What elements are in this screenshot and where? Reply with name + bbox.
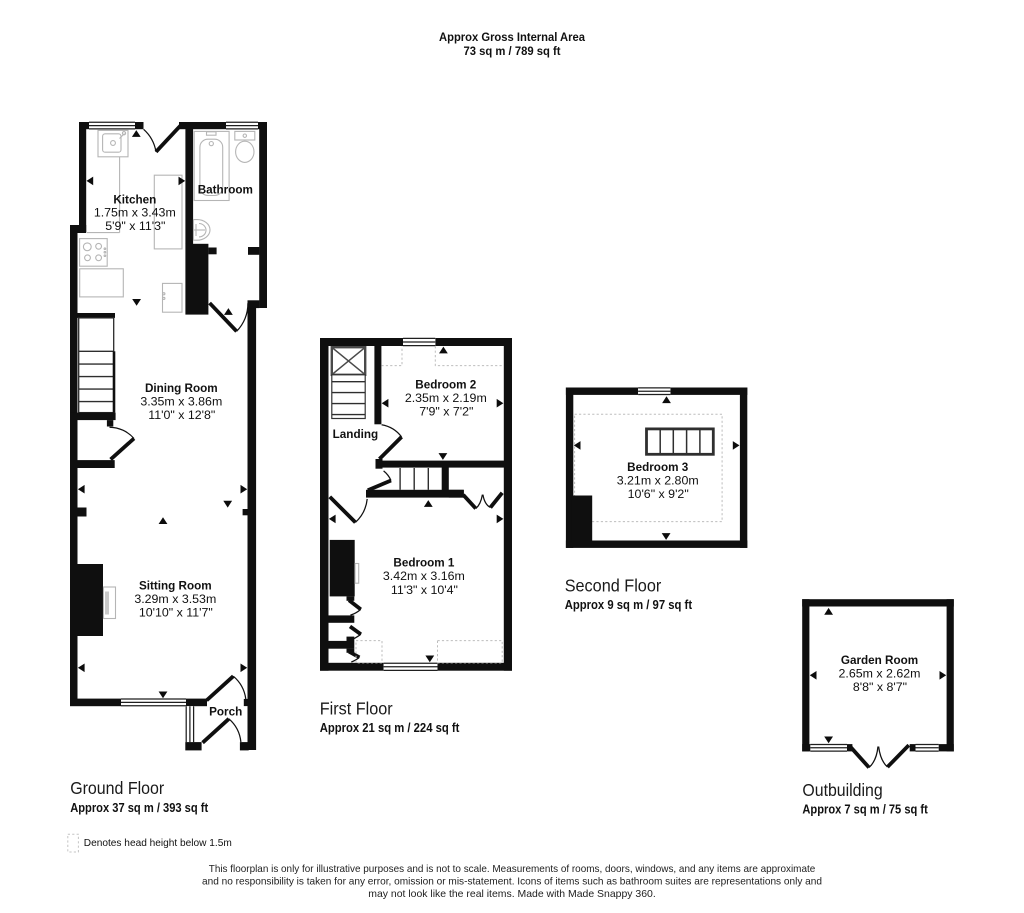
svg-text:Sitting Room: Sitting Room — [139, 580, 212, 593]
svg-text:8'8" x 8'7": 8'8" x 8'7" — [853, 680, 907, 694]
svg-text:Ground Floor: Ground Floor — [70, 778, 164, 798]
svg-text:3.29m x 3.53m: 3.29m x 3.53m — [134, 592, 216, 606]
svg-text:Approx 7 sq m / 75 sq ft: Approx 7 sq m / 75 sq ft — [802, 803, 928, 817]
svg-text:73 sq m / 789 sq ft: 73 sq m / 789 sq ft — [464, 44, 561, 58]
svg-text:Approx 21 sq m / 224 sq ft: Approx 21 sq m / 224 sq ft — [320, 721, 460, 735]
svg-text:and no responsibility is taken: and no responsibility is taken for any e… — [202, 876, 822, 887]
svg-text:3.42m x 3.16m: 3.42m x 3.16m — [383, 569, 465, 583]
svg-text:Landing: Landing — [333, 428, 378, 441]
svg-text:Second Floor: Second Floor — [565, 576, 662, 596]
svg-text:Dining Room: Dining Room — [145, 382, 218, 395]
svg-text:3.35m x 3.86m: 3.35m x 3.86m — [140, 394, 222, 408]
svg-text:7'9" x 7'2": 7'9" x 7'2" — [419, 405, 473, 419]
svg-text:This floorplan is only for ill: This floorplan is only for illustrative … — [209, 864, 816, 875]
svg-text:2.65m x 2.62m: 2.65m x 2.62m — [839, 666, 921, 680]
svg-text:Outbuilding: Outbuilding — [802, 780, 882, 800]
svg-text:may not look like the real ite: may not look like the real items. Made w… — [368, 889, 656, 900]
svg-text:1.75m x 3.43m: 1.75m x 3.43m — [94, 206, 176, 220]
svg-text:First Floor: First Floor — [320, 698, 393, 718]
svg-text:Garden Room: Garden Room — [841, 654, 918, 667]
svg-text:10'6" x 9'2": 10'6" x 9'2" — [628, 487, 689, 501]
svg-text:Approx Gross Internal Area: Approx Gross Internal Area — [439, 30, 585, 44]
svg-text:Bedroom 3: Bedroom 3 — [627, 461, 689, 474]
svg-text:Porch: Porch — [209, 705, 242, 718]
svg-text:Denotes head height below 1.5m: Denotes head height below 1.5m — [84, 838, 232, 849]
svg-text:Bathroom: Bathroom — [198, 183, 253, 196]
svg-text:11'0" x 12'8": 11'0" x 12'8" — [148, 408, 215, 422]
svg-text:Bedroom 2: Bedroom 2 — [415, 379, 477, 392]
svg-text:Kitchen: Kitchen — [113, 193, 156, 206]
svg-text:11'3" x 10'4": 11'3" x 10'4" — [391, 583, 458, 597]
svg-text:Approx 37 sq m / 393 sq ft: Approx 37 sq m / 393 sq ft — [70, 801, 209, 815]
svg-text:5'9" x 11'3": 5'9" x 11'3" — [105, 219, 165, 233]
svg-text:10'10" x 11'7": 10'10" x 11'7" — [139, 605, 213, 619]
svg-text:3.21m x 2.80m: 3.21m x 2.80m — [617, 473, 699, 487]
svg-text:Approx 9 sq m / 97 sq ft: Approx 9 sq m / 97 sq ft — [565, 598, 693, 612]
svg-text:Bedroom 1: Bedroom 1 — [393, 556, 455, 569]
svg-text:2.35m x 2.19m: 2.35m x 2.19m — [405, 391, 487, 405]
